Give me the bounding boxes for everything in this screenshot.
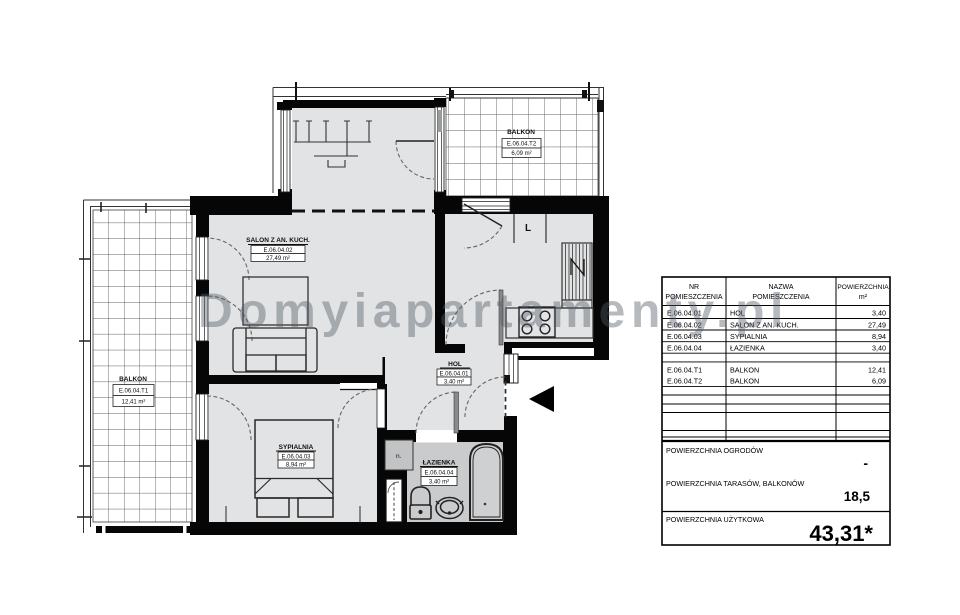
svg-text:POWIERZCHNIA TARASÓW, BALKONÓ: POWIERZCHNIA TARASÓW, BALKONÓW <box>666 479 805 488</box>
svg-text:BALKON: BALKON <box>730 377 759 386</box>
svg-text:12,41: 12,41 <box>868 366 886 375</box>
svg-text:18,5: 18,5 <box>844 489 871 504</box>
svg-text:Domyiapartamenty.pl: Domyiapartamenty.pl <box>198 285 789 338</box>
svg-text:E.06.04.T2: E.06.04.T2 <box>667 377 702 386</box>
svg-text:E.06.04.T1: E.06.04.T1 <box>667 366 702 375</box>
svg-text:SALON Z AN. KUCH.: SALON Z AN. KUCH. <box>246 237 310 244</box>
svg-text:43,31*: 43,31* <box>809 521 873 546</box>
svg-text:POWIERZCHNIA UŻYTKOWA: POWIERZCHNIA UŻYTKOWA <box>666 515 764 524</box>
svg-text:27,49 m²: 27,49 m² <box>266 256 290 262</box>
svg-text:E.06.04.04: E.06.04.04 <box>667 344 702 353</box>
svg-text:POWIERZCHNIA: POWIERZCHNIA <box>837 284 889 291</box>
svg-text:E.06.04.04: E.06.04.04 <box>424 471 454 477</box>
svg-text:m²: m² <box>859 294 868 301</box>
svg-text:12,41 m²: 12,41 m² <box>122 400 146 406</box>
svg-text:E.06.04.T1: E.06.04.T1 <box>119 389 149 395</box>
svg-text:L: L <box>525 223 531 234</box>
svg-text:SYPIALNIA: SYPIALNIA <box>279 444 314 451</box>
svg-text:3,40 m²: 3,40 m² <box>444 380 464 386</box>
svg-text:-: - <box>863 455 868 471</box>
svg-text:6,09 m²: 6,09 m² <box>511 151 531 157</box>
svg-text:BALKON: BALKON <box>507 129 535 136</box>
svg-text:BALKON: BALKON <box>730 366 759 375</box>
svg-text:HOL: HOL <box>448 361 462 368</box>
svg-text:BALKON: BALKON <box>119 376 147 383</box>
svg-text:8,94: 8,94 <box>872 332 886 341</box>
svg-text:3,40: 3,40 <box>872 344 886 353</box>
svg-text:3,40: 3,40 <box>872 309 886 318</box>
svg-text:3,40 m²: 3,40 m² <box>429 480 449 486</box>
svg-text:n.: n. <box>396 453 402 460</box>
svg-text:POWIERZCHNIA OGRODÓW: POWIERZCHNIA OGRODÓW <box>666 446 763 455</box>
svg-text:ŁAZIENKA: ŁAZIENKA <box>423 460 456 467</box>
svg-text:E.06.04.T2: E.06.04.T2 <box>507 142 537 148</box>
svg-text:8,94 m²: 8,94 m² <box>286 463 306 469</box>
svg-text:6,09: 6,09 <box>872 377 886 386</box>
svg-text:27,49: 27,49 <box>868 321 886 330</box>
svg-text:ŁAZIENKA: ŁAZIENKA <box>730 344 765 353</box>
